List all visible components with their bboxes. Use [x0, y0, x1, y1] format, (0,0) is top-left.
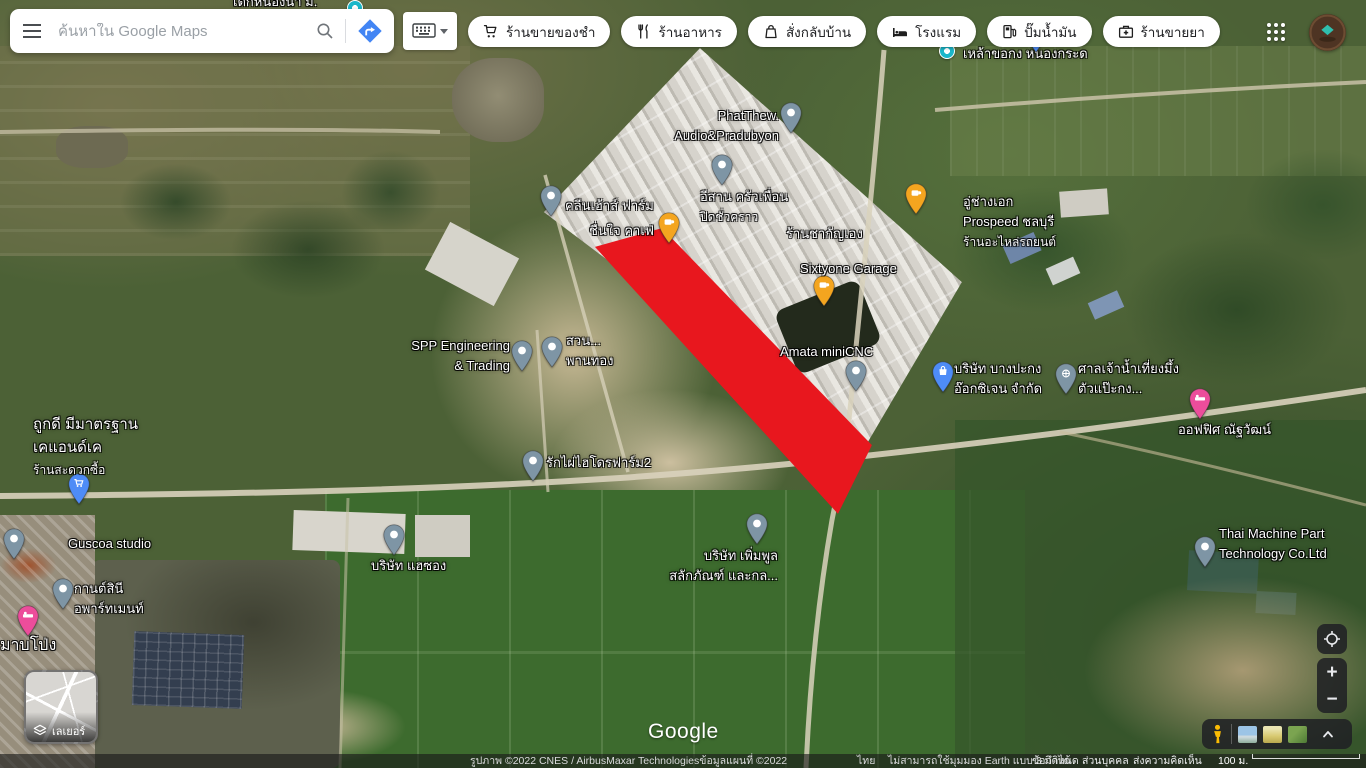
amata-minicnc-pin-icon[interactable]: [845, 360, 867, 397]
layers-label: เลเยอร์: [52, 722, 85, 740]
grocery-cart-icon: [483, 24, 499, 39]
menu-button[interactable]: [10, 9, 54, 53]
imagery-carousel: [1202, 719, 1352, 749]
zoom-control: + −: [1317, 658, 1347, 713]
chip-pharmacies[interactable]: ร้านขายยา: [1103, 16, 1220, 47]
takeout-bag-icon: [763, 24, 779, 39]
privacy-link[interactable]: ส่วนบุคคล: [1082, 754, 1129, 768]
search-input[interactable]: [54, 23, 305, 40]
isan-krua-puen-pin-icon[interactable]: [711, 154, 733, 191]
terrain-trees: [110, 145, 440, 335]
bangpakong-oxygen-pin-icon[interactable]: [932, 361, 954, 398]
scale-label: 100 ม.: [1218, 754, 1248, 768]
cleanhouse-farm-label[interactable]: คลีนเฮ้าส์ ฟาร์ม: [565, 196, 654, 216]
my-location-icon: [1323, 630, 1341, 648]
thai-machine-part-pin-icon[interactable]: [1194, 536, 1216, 573]
category-chips: ร้านขายของชำ ร้านอาหาร สั่งกลับบ้าน โรงแ…: [468, 16, 1220, 47]
terrain-pond: [452, 58, 544, 142]
chip-label: ร้านขายยา: [1141, 21, 1205, 43]
chip-label: สั่งกลับบ้าน: [786, 21, 851, 43]
amata-minicnc-label[interactable]: Amata miniCNC: [780, 342, 873, 362]
chip-hotels[interactable]: โรงแรม: [877, 16, 976, 47]
rakphai-hydrofarm2-pin-icon[interactable]: [522, 450, 544, 487]
building-roof: [1059, 188, 1109, 217]
pegman-icon[interactable]: [1210, 724, 1225, 744]
collapse-carousel-button[interactable]: [1321, 727, 1335, 741]
terrain-patch: [950, 46, 1366, 176]
terrain-patch: [0, 46, 470, 256]
google-maps-app: เดกหนองนา ม.เหล้าขอกง หนองกระดPhatThew.A…: [0, 0, 1366, 768]
search-icon: [316, 22, 334, 40]
building-roof: [1088, 290, 1125, 319]
cleanhouse-farm-pin-icon[interactable]: [540, 185, 562, 222]
chip-label: ปั๊มน้ำมัน: [1024, 21, 1076, 43]
search-button[interactable]: [305, 9, 345, 53]
apps-grid-button[interactable]: [1262, 19, 1290, 47]
pharmacy-icon: [1118, 24, 1134, 39]
kansinee-apartment-pin-icon[interactable]: [52, 578, 74, 615]
zoom-out-button[interactable]: −: [1317, 686, 1347, 713]
sixtyone-garage-pin-icon[interactable]: [813, 275, 835, 312]
chip-restaurants[interactable]: ร้านอาหาร: [621, 16, 736, 47]
layers-caption: เลเยอร์: [26, 712, 96, 742]
my-location-button[interactable]: [1317, 624, 1347, 654]
apps-grid-icon: [1265, 21, 1287, 43]
guscoa-studio-pin-icon[interactable]: [3, 528, 25, 565]
solar-panels: [132, 631, 245, 709]
building-roof: [1046, 257, 1081, 286]
suan-phan-thong-pin-icon[interactable]: [541, 336, 563, 373]
phatthew-audio-label[interactable]: PhatThew.Audio&Pradubyon: [674, 106, 779, 146]
chevron-up-icon: [1321, 727, 1335, 741]
input-method-button[interactable]: [403, 12, 457, 50]
caret-down-icon: [440, 29, 448, 34]
search-box: [10, 9, 394, 53]
hotel-bed-icon: [892, 25, 908, 39]
thai-machine-part-label[interactable]: Thai Machine PartTechnology Co.Ltd: [1219, 524, 1327, 564]
chip-grocery[interactable]: ร้านขายของชำ: [468, 16, 610, 47]
terrain-patch: [955, 420, 1366, 768]
chip-label: ร้านอาหาร: [658, 21, 721, 43]
kansinee-apartment-label[interactable]: กานต์สินีอพาร์ทเมนท์: [74, 579, 144, 619]
suan-phan-thong-label[interactable]: สวน...พานทอง: [566, 331, 613, 371]
hamburger-icon: [23, 24, 41, 26]
terrain-pond: [56, 126, 128, 168]
spp-engineering-label[interactable]: SPP Engineering& Trading: [411, 336, 510, 376]
warehouse-roof: [415, 515, 470, 557]
attribution-bar: รูปภาพ ©2022 CNES / AirbusMaxar Technolo…: [0, 754, 1366, 768]
office-natthawat-label[interactable]: ออฟฟิศ ณัฐวัฒน์: [1178, 420, 1271, 440]
gas-pump-icon: [1002, 24, 1017, 39]
prospeed-chonburi-label[interactable]: อู่ช่างเอกProspeed ชลบุรีร้านอะไหล่รถยนต…: [963, 192, 1056, 252]
scale-bar: [1252, 754, 1360, 759]
cheunjai-cafe-pin-icon[interactable]: [658, 212, 680, 249]
avatar-image: [1309, 14, 1346, 51]
imagery-attribution: รูปภาพ ©2022 CNES / AirbusMaxar Technolo…: [470, 754, 787, 768]
mab-pong-label[interactable]: มาบโป่ง: [0, 634, 56, 658]
chakanyeng-label[interactable]: ร้านชากัญเอง: [786, 224, 863, 244]
chip-label: ร้านขายของชำ: [506, 21, 595, 43]
chip-gas[interactable]: ปั๊มน้ำมัน: [987, 16, 1091, 47]
satellite-thumbnail-2[interactable]: [1263, 726, 1282, 743]
restaurant-icon: [636, 24, 651, 39]
directions-icon: [357, 18, 383, 44]
region-label: ไทย: [857, 754, 875, 768]
profile-avatar[interactable]: [1309, 14, 1346, 51]
spp-engineering-pin-icon[interactable]: [511, 340, 533, 377]
warehouse-roof: [425, 222, 519, 306]
bangpakong-oxygen-label[interactable]: บริษัท บางปะกงอ๊อกซิเจน จำกัด: [954, 359, 1042, 399]
satellite-thumbnail-1[interactable]: [1238, 726, 1257, 743]
permpoon-salakphan-pin-icon[interactable]: [746, 513, 768, 550]
map-labels-layer: เดกหนองนา ม.เหล้าขอกง หนองกระดPhatThew.A…: [0, 0, 1366, 768]
guscoa-studio-label[interactable]: Guscoa studio: [68, 534, 151, 554]
keyboard-icon: [412, 23, 436, 39]
google-watermark: Google: [648, 720, 719, 744]
shrine-nam-thiang-pin-icon[interactable]: [1055, 363, 1077, 400]
cheunjai-cafe-label[interactable]: ชื่นใจ คาเฟ่: [589, 221, 654, 241]
tookdee-kandk-label[interactable]: ถูกดี มีมาตรฐานเคแอนด์เคร้านสะดวกซื้อ: [33, 413, 138, 482]
building-roof: [1255, 591, 1296, 615]
sixtyone-garage-label[interactable]: Sixtyone Garage: [800, 259, 897, 279]
haesong-label[interactable]: บริษัท แฮซอง: [371, 556, 446, 576]
chakanyeng-pin-icon[interactable]: [905, 183, 927, 220]
layers-icon: [33, 724, 47, 738]
satellite-thumbnail-3[interactable]: [1288, 726, 1307, 743]
isan-krua-puen-label[interactable]: อีสาน ครัวเพื่อนปิดชั่วคราว: [700, 187, 788, 227]
phatthew-audio-pin-icon[interactable]: [780, 102, 802, 139]
feedback-link[interactable]: ส่งความคิดเห็น: [1133, 754, 1202, 768]
permpoon-salakphan-label[interactable]: บริษัท เพิ่มพูลสลักภัณฑ์ และกล...: [669, 546, 778, 586]
satellite-map[interactable]: เดกหนองนา ม.เหล้าขอกง หนองกระดPhatThew.A…: [0, 0, 1366, 768]
zoom-in-button[interactable]: +: [1317, 659, 1347, 686]
carousel-divider: [1231, 724, 1232, 744]
shrine-nam-thiang-label[interactable]: ศาลเจ้าน้ำเที่ยงมึ้งตัวแป๊ะกง...: [1078, 359, 1179, 399]
chip-label: โรงแรม: [915, 21, 961, 43]
rakphai-hydrofarm2-label[interactable]: รักไผ่ไฮโดรฟาร์ม2: [546, 453, 651, 473]
chip-takeout[interactable]: สั่งกลับบ้าน: [748, 16, 866, 47]
directions-button[interactable]: [346, 9, 394, 53]
layers-button[interactable]: เลเยอร์: [24, 670, 98, 744]
terms-link[interactable]: ข้อกำหนด: [1032, 754, 1079, 768]
